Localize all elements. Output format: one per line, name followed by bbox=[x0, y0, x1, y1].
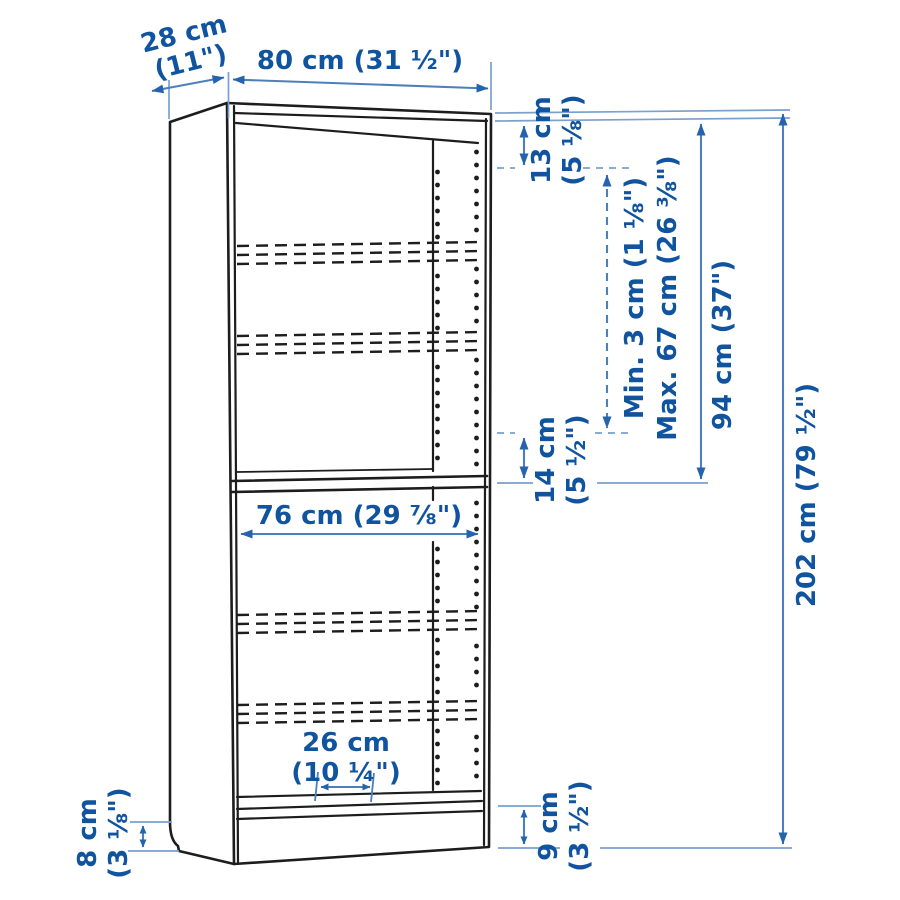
peg-hole bbox=[435, 690, 440, 695]
peg-hole bbox=[435, 664, 440, 669]
peg-hole bbox=[435, 378, 440, 383]
peg-hole bbox=[474, 176, 479, 181]
dim-shelf-minmax: Min. 3 cm (1 ⅛") Max. 67 cm (26 ⅜") bbox=[607, 155, 683, 440]
peg-hole bbox=[435, 222, 440, 227]
peg-hole bbox=[474, 215, 479, 220]
dim-upper-section-94cm: 94 cm (37") bbox=[701, 124, 738, 479]
left-stile-inner-edge bbox=[234, 106, 238, 862]
right-stile-inner-edge bbox=[484, 119, 486, 845]
dim-width-label: 80 cm (31 ½") bbox=[257, 46, 463, 76]
dim-bottom-depth-26cm: 26 cm (10 ¼") bbox=[291, 728, 400, 802]
dim-plinth-left-label-cm: 8 cm bbox=[73, 798, 103, 868]
peg-hole bbox=[435, 183, 440, 188]
peg-hole bbox=[474, 748, 479, 753]
dim-shelf-gap-label-in: (5 ½") bbox=[562, 414, 592, 505]
peg-hole bbox=[435, 287, 440, 292]
dim-width-80cm: 80 cm (31 ½") bbox=[233, 46, 491, 110]
peg-hole bbox=[435, 274, 440, 279]
peg-hole bbox=[435, 365, 440, 370]
peg-hole bbox=[474, 202, 479, 207]
shelf-peg-holes bbox=[435, 150, 479, 786]
peg-hole bbox=[474, 605, 479, 610]
peg-hole bbox=[435, 781, 440, 786]
peg-hole bbox=[435, 768, 440, 773]
peg-hole bbox=[435, 742, 440, 747]
peg-hole bbox=[474, 527, 479, 532]
peg-hole bbox=[474, 410, 479, 415]
adjustable-shelf-4 bbox=[237, 701, 481, 723]
peg-hole bbox=[474, 397, 479, 402]
peg-hole bbox=[474, 670, 479, 675]
top-panel-underside-edge bbox=[236, 123, 478, 143]
peg-hole bbox=[474, 501, 479, 506]
dim-inner-width-label: 76 cm (29 ⅞") bbox=[256, 501, 462, 531]
peg-hole bbox=[474, 280, 479, 285]
adjustable-shelf-3 bbox=[237, 611, 481, 633]
peg-hole bbox=[435, 313, 440, 318]
dim-height-label: 202 cm (79 ½") bbox=[792, 383, 822, 607]
peg-hole bbox=[474, 384, 479, 389]
bookcase-side-panel bbox=[170, 103, 234, 864]
peg-hole bbox=[474, 774, 479, 779]
dim-top-offset-label-in: (5 ⅛") bbox=[558, 94, 588, 185]
peg-hole bbox=[474, 514, 479, 519]
peg-hole bbox=[474, 592, 479, 597]
dim-plinth-left-label-in: (3 ⅛") bbox=[104, 787, 134, 878]
middle-shelf bbox=[232, 476, 487, 492]
peg-hole bbox=[435, 729, 440, 734]
peg-hole bbox=[474, 566, 479, 571]
peg-hole bbox=[435, 209, 440, 214]
dim-inner-width-76cm: 76 cm (29 ⅞") bbox=[241, 501, 478, 534]
bookcase-dimension-diagram: 28 cm (11") 80 cm (31 ½") 13 cm (5 ⅛") M bbox=[0, 0, 900, 900]
peg-hole bbox=[474, 553, 479, 558]
peg-hole bbox=[435, 170, 440, 175]
peg-hole bbox=[435, 586, 440, 591]
peg-hole bbox=[474, 423, 479, 428]
peg-hole bbox=[474, 358, 479, 363]
peg-hole bbox=[435, 326, 440, 331]
dim-shelf-max-label: Max. 67 cm (26 ⅜") bbox=[653, 155, 683, 440]
peg-hole bbox=[435, 638, 440, 643]
peg-hole bbox=[474, 462, 479, 467]
peg-hole bbox=[474, 293, 479, 298]
peg-hole bbox=[435, 235, 440, 240]
peg-hole bbox=[474, 306, 479, 311]
peg-hole bbox=[474, 579, 479, 584]
dim-plinth-left-8cm: 8 cm (3 ⅛") bbox=[73, 787, 179, 878]
dim-bottom-depth-label-in: (10 ¼") bbox=[291, 758, 400, 788]
adjustable-shelf-1 bbox=[237, 242, 481, 264]
peg-hole bbox=[435, 573, 440, 578]
peg-hole bbox=[474, 449, 479, 454]
peg-hole bbox=[474, 267, 479, 272]
peg-hole bbox=[435, 300, 440, 305]
dim-bottom-depth-label-cm: 26 cm bbox=[302, 728, 390, 758]
peg-hole bbox=[474, 761, 479, 766]
peg-hole bbox=[435, 196, 440, 201]
peg-hole bbox=[474, 371, 479, 376]
peg-hole bbox=[435, 677, 440, 682]
peg-hole bbox=[474, 657, 479, 662]
peg-hole bbox=[435, 391, 440, 396]
peg-hole bbox=[474, 644, 479, 649]
peg-hole bbox=[474, 540, 479, 545]
peg-hole bbox=[474, 228, 479, 233]
dim-plinth-right-9cm: 9 cm (3 ½") bbox=[498, 780, 595, 871]
dim-plinth-right-label-cm: 9 cm bbox=[534, 791, 564, 861]
peg-hole bbox=[474, 150, 479, 155]
peg-hole bbox=[474, 163, 479, 168]
peg-hole bbox=[435, 443, 440, 448]
dim-plinth-right-label-in: (3 ½") bbox=[565, 780, 595, 871]
peg-hole bbox=[435, 430, 440, 435]
peg-hole bbox=[474, 189, 479, 194]
peg-hole bbox=[435, 404, 440, 409]
dim-depth-28cm: 28 cm (11") bbox=[138, 9, 237, 119]
peg-hole bbox=[435, 417, 440, 422]
peg-hole bbox=[474, 319, 479, 324]
peg-hole bbox=[474, 436, 479, 441]
dim-top-offset-label-cm: 13 cm bbox=[527, 96, 557, 184]
peg-hole bbox=[435, 599, 440, 604]
dim-shelf-min-label: Min. 3 cm (1 ⅛") bbox=[620, 177, 650, 419]
peg-hole bbox=[474, 735, 479, 740]
dim-upper-section-label: 94 cm (37") bbox=[708, 260, 738, 430]
peg-hole bbox=[435, 651, 440, 656]
dim-top-offset-13cm: 13 cm (5 ⅛") bbox=[497, 94, 633, 185]
adjustable-shelf-2 bbox=[237, 332, 481, 354]
peg-hole bbox=[435, 755, 440, 760]
peg-hole bbox=[435, 560, 440, 565]
bottom-shelf bbox=[237, 791, 482, 819]
dim-shelf-gap-label-cm: 14 cm bbox=[531, 416, 561, 504]
middle-shelf-back-edge bbox=[237, 469, 433, 472]
top-panel-front-edge bbox=[234, 113, 487, 121]
peg-hole bbox=[435, 547, 440, 552]
peg-hole bbox=[474, 683, 479, 688]
peg-hole bbox=[435, 456, 440, 461]
